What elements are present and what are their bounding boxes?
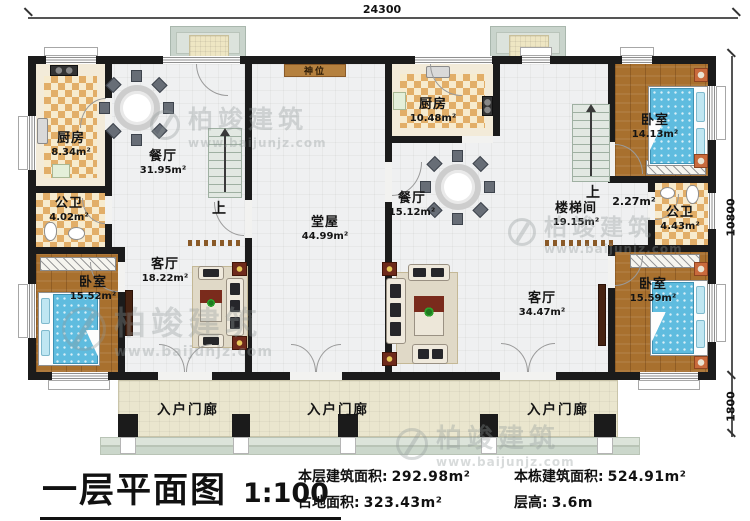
- roof-block: [170, 26, 246, 60]
- stat-total-area: 本栋建筑面积:524.91m²: [514, 466, 686, 486]
- window: [28, 116, 36, 170]
- porch-label: 入户门廊: [305, 398, 371, 418]
- sofa-cushion: [418, 349, 429, 359]
- wall-interior: [493, 64, 500, 136]
- dimension-line-top: [28, 17, 738, 19]
- dimension-porch-value: 1800: [725, 390, 738, 424]
- room-label-stairwell: 楼梯间 19.15m²: [536, 202, 616, 228]
- nightstand: [694, 154, 708, 168]
- sofa-cushion: [230, 300, 240, 312]
- stair-direction-line: [590, 112, 592, 176]
- window-sill: [44, 47, 98, 56]
- porch-column: [118, 414, 138, 437]
- stair-direction-arrow: [586, 104, 596, 112]
- porch-column: [480, 414, 498, 437]
- toilet-icon: [686, 185, 699, 204]
- floor-plan-canvas: 24300 10800 1800: [0, 0, 750, 521]
- window-sill: [716, 86, 726, 140]
- sofa-cushion: [203, 269, 219, 277]
- dimension-tick: [732, 7, 741, 16]
- sofa-cushion: [390, 284, 401, 298]
- side-table: [232, 262, 247, 276]
- wall-interior: [608, 245, 716, 252]
- sofa-cushion: [413, 268, 426, 277]
- nightstand: [694, 356, 708, 369]
- dining-table-round: [114, 85, 160, 131]
- roof-block-skylight: [189, 35, 229, 57]
- chair: [163, 102, 174, 114]
- tv-cabinet: [598, 284, 606, 346]
- kitchen-mat-icon: [52, 164, 70, 178]
- chair: [452, 150, 463, 162]
- nightstand: [694, 68, 708, 82]
- chair: [131, 70, 142, 82]
- window-sill: [18, 116, 28, 170]
- wall-interior: [105, 64, 112, 254]
- window: [163, 56, 240, 64]
- door-opening: [290, 372, 342, 380]
- side-table: [382, 352, 397, 366]
- room-label-bedroom-left: 卧室 15.52m²: [62, 276, 124, 302]
- sofa-cushion: [432, 349, 443, 359]
- wall-outer-top: [28, 56, 716, 64]
- porch-pier: [233, 437, 249, 454]
- stair-direction-line: [224, 136, 226, 192]
- side-table: [382, 262, 397, 276]
- plant-icon: [206, 298, 216, 308]
- door-opening: [245, 200, 252, 238]
- dimension-tick: [24, 7, 33, 16]
- wall-interior: [608, 176, 716, 183]
- room-label-kitchen-right: 厨房 10.48m²: [398, 98, 468, 124]
- bed-fold: [82, 330, 98, 364]
- porch-pier: [120, 437, 136, 454]
- window: [52, 372, 108, 380]
- door-opening: [500, 372, 556, 380]
- window-sill: [716, 284, 726, 342]
- window-sill: [638, 380, 700, 390]
- plan-stats: 本层建筑面积:292.98m² 本栋建筑面积:524.91m² 占地面积:323…: [298, 466, 686, 512]
- stove-icon: [482, 96, 493, 116]
- plan-title-block: 一层平面图 1:100: [40, 462, 341, 520]
- plant-icon: [423, 306, 435, 318]
- room-label-kitchen-left: 厨房 8.34m²: [38, 132, 104, 158]
- dimension-right-value: 10800: [725, 198, 738, 238]
- tv-cabinet: [125, 290, 133, 336]
- basin-icon: [68, 227, 85, 240]
- stove-icon: [50, 65, 78, 76]
- wall-interior: [36, 186, 106, 193]
- nightstand: [694, 262, 708, 276]
- sofa-cushion: [390, 303, 401, 317]
- window: [708, 86, 716, 140]
- wall-interior: [36, 247, 125, 254]
- toilet-icon: [44, 222, 57, 241]
- room-label-bath-left: 公卫 4.02m²: [36, 197, 102, 223]
- plan-title: 一层平面图: [42, 462, 227, 513]
- stat-footprint-area: 占地面积:323.43m²: [298, 492, 506, 512]
- sofa-cushion: [431, 268, 444, 277]
- side-table: [232, 336, 247, 350]
- window: [28, 284, 36, 338]
- pillow: [696, 92, 705, 122]
- room-label-hall: 堂屋 44.99m²: [288, 216, 362, 242]
- window-sill: [48, 380, 110, 390]
- window: [640, 372, 698, 380]
- pillow: [41, 330, 50, 356]
- sofa-cushion: [390, 322, 401, 336]
- porch-column: [232, 414, 250, 437]
- stat-story-height: 层高:3.6m: [514, 492, 686, 512]
- pillow: [41, 298, 50, 324]
- pillow: [696, 286, 705, 314]
- porch-pier: [340, 437, 356, 454]
- window-sill: [620, 47, 654, 56]
- room-label-living-left: 客厅 18.22m²: [130, 258, 200, 284]
- porch-step: [100, 446, 640, 455]
- window-sill: [18, 284, 28, 338]
- door-opening: [608, 256, 615, 288]
- chair: [452, 213, 463, 225]
- porch-pier: [597, 437, 613, 454]
- threshold-dashed: [188, 240, 242, 246]
- dimension-top-value: 24300: [352, 3, 412, 16]
- shrine-label: 神位: [304, 64, 326, 77]
- room-label-dining-right: 餐厅 15.12m²: [382, 192, 442, 218]
- door-opening: [158, 372, 212, 380]
- bed-fold: [652, 312, 668, 354]
- room-label-bedroom-bottom-right: 卧室 15.59m²: [618, 278, 688, 304]
- window: [415, 56, 492, 64]
- chair: [484, 181, 495, 193]
- porch-step: [100, 437, 640, 446]
- stat-floor-area: 本层建筑面积:292.98m²: [298, 466, 506, 486]
- window: [46, 56, 96, 64]
- door-opening: [462, 136, 493, 143]
- room-label-dining-left: 餐厅 31.95m²: [128, 150, 198, 176]
- room-label-bedroom-top-right: 卧室 14.13m²: [620, 114, 690, 140]
- chair: [131, 134, 142, 146]
- stairs-up-label: 上: [578, 182, 608, 202]
- window: [622, 56, 652, 64]
- threshold-dashed: [545, 240, 615, 246]
- window: [522, 56, 550, 64]
- window-sill: [520, 47, 552, 56]
- stairs-up-label: 上: [204, 198, 234, 218]
- porch-label: 入户门廊: [525, 398, 591, 418]
- door-opening: [105, 196, 112, 224]
- porch-column: [594, 414, 616, 437]
- wall-outer-bottom: [28, 372, 716, 380]
- window: [708, 284, 716, 342]
- room-label-bath-right: 公卫 4.43m²: [650, 206, 710, 232]
- pillow: [696, 320, 705, 348]
- sofa-cushion: [230, 283, 240, 295]
- porch-label: 入户门廊: [155, 398, 221, 418]
- room-label-living-right: 客厅 34.47m²: [502, 292, 582, 318]
- stair-direction-arrow: [220, 128, 230, 136]
- shrine-shelf: 神位: [284, 64, 346, 77]
- sofa-cushion: [230, 317, 240, 329]
- porch-pier: [481, 437, 497, 454]
